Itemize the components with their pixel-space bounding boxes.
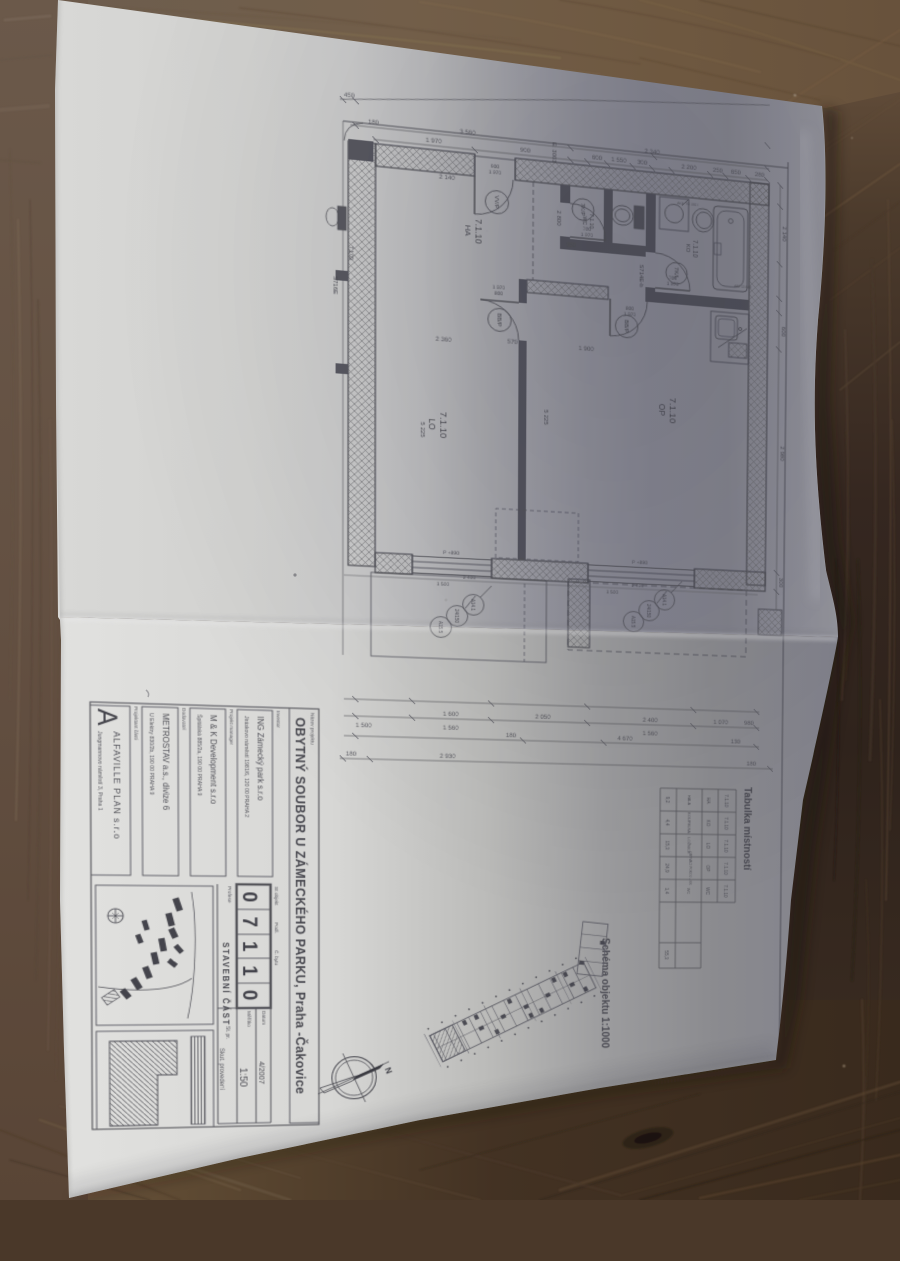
svg-text:1 500: 1 500 <box>437 581 450 588</box>
svg-text:180: 180 <box>747 761 757 768</box>
svg-text:1 970: 1 970 <box>489 169 502 176</box>
svg-text:St. pr.: St. pr. <box>224 1026 230 1039</box>
svg-text:2 140: 2 140 <box>781 226 788 242</box>
svg-text:Profese: Profese <box>226 886 232 903</box>
svg-text:24/150: 24/150 <box>646 604 651 618</box>
svg-text:5 225: 5 225 <box>419 422 426 438</box>
svg-text:WC: WC <box>704 887 710 895</box>
svg-text:7.1.10: 7.1.10 <box>588 213 594 229</box>
svg-text:AKU TO 150 l: AKU TO 150 l <box>677 201 698 207</box>
svg-text:1 550: 1 550 <box>611 156 627 165</box>
svg-text:KOUPELNA: KOUPELNA <box>687 812 692 833</box>
svg-text:2 980: 2 980 <box>779 446 786 462</box>
svg-text:2 140: 2 140 <box>439 173 456 182</box>
svg-text:450: 450 <box>344 91 355 99</box>
svg-text:980: 980 <box>744 720 754 727</box>
svg-text:BB/P: BB/P <box>622 319 628 333</box>
svg-text:LO: LO <box>427 418 437 430</box>
svg-text:KO: KO <box>684 243 690 252</box>
svg-text:700: 700 <box>583 226 592 233</box>
svg-text:2 360: 2 360 <box>436 336 452 344</box>
svg-text:600: 600 <box>780 326 787 337</box>
svg-text:4,4: 4,4 <box>664 819 670 826</box>
svg-text:700: 700 <box>669 275 677 282</box>
svg-text:7.1.10: 7.1.10 <box>722 885 728 898</box>
svg-text:9,2: 9,2 <box>664 796 670 803</box>
svg-text:HALA: HALA <box>687 795 692 805</box>
svg-text:OBÝVACÍ POKOJ + KK: OBÝVACÍ POKOJ + KK <box>688 851 692 885</box>
svg-text:550: 550 <box>566 242 577 250</box>
svg-text:24,9: 24,9 <box>663 864 669 873</box>
svg-text:STAVEBNÍ ČÁST: STAVEBNÍ ČÁST <box>221 942 231 1026</box>
svg-text:2 200: 2 200 <box>681 164 697 172</box>
svg-text:Investor: Investor <box>275 711 281 729</box>
svg-text:HA: HA <box>705 797 711 804</box>
svg-text:2 930: 2 930 <box>440 753 456 760</box>
svg-text:Jungmannovo náměstí 3, Praha 1: Jungmannovo náměstí 3, Praha 1 <box>96 731 103 811</box>
svg-text:1: 1 <box>238 941 260 952</box>
svg-text:180: 180 <box>346 751 357 758</box>
svg-text:E: 3003: E: 3003 <box>550 142 556 164</box>
svg-text:OP: OP <box>704 865 710 872</box>
svg-text:2 400: 2 400 <box>643 717 658 724</box>
svg-text:A: A <box>91 708 122 726</box>
svg-text:WC: WC <box>686 888 691 894</box>
svg-text:ING Zámecký park s.r.o: ING Zámecký park s.r.o <box>255 716 265 801</box>
svg-text:A15.5: A15.5 <box>438 621 443 633</box>
svg-text:7K/P: 7K/P <box>579 203 585 216</box>
svg-text:1: 1 <box>238 965 260 976</box>
svg-text:S714E-b: S714E-b <box>638 264 644 288</box>
svg-text:55,3: 55,3 <box>663 951 669 960</box>
svg-text:HA: HA <box>463 224 472 237</box>
svg-text:U Elektry 830/2b, 190 00 PRAHA: U Elektry 830/2b, 190 00 PRAHA 9 <box>147 713 154 795</box>
svg-text:1:50: 1:50 <box>237 1068 249 1088</box>
svg-text:24/150: 24/150 <box>454 609 459 623</box>
svg-text:2 400: 2 400 <box>463 575 476 582</box>
svg-text:Název projektu: Název projektu <box>309 713 315 745</box>
svg-text:1 500: 1 500 <box>356 722 373 729</box>
svg-text:570: 570 <box>507 338 518 346</box>
svg-text:2 050: 2 050 <box>535 714 551 721</box>
svg-text:900: 900 <box>491 164 500 171</box>
svg-text:7.1.10: 7.1.10 <box>437 411 448 438</box>
svg-text:2 400: 2 400 <box>632 583 644 589</box>
svg-text:2 800: 2 800 <box>555 210 562 227</box>
svg-text:130: 130 <box>731 739 741 746</box>
svg-text:VV/P: VV/P <box>492 195 498 209</box>
svg-text:KO: KO <box>705 820 711 827</box>
svg-text:650: 650 <box>731 169 741 177</box>
svg-text:1,4: 1,4 <box>663 888 669 895</box>
svg-text:S716E: S716E <box>331 276 337 295</box>
svg-text:Skut. provedení: Skut. provedení <box>218 1048 225 1090</box>
svg-text:7.1.10: 7.1.10 <box>722 840 728 853</box>
svg-text:Jiráskovo náměstí 1981/6, 120: Jiráskovo náměstí 1981/6, 120 00 PRAHA 2 <box>243 716 250 818</box>
svg-text:1 560: 1 560 <box>443 725 459 732</box>
svg-text:LO: LO <box>705 843 711 849</box>
svg-text:METROSTAV a.s., divize 6: METROSTAV a.s., divize 6 <box>161 713 171 810</box>
svg-text:M & K Development s.r.o: M & K Development s.r.o <box>208 715 218 805</box>
svg-text:Projektant části: Projektant části <box>132 706 139 740</box>
svg-text:7.1.10: 7.1.10 <box>722 862 728 875</box>
svg-text:1 560: 1 560 <box>643 730 658 737</box>
svg-text:Špitálská 885/2a, 190 00 PRAHA: Špitálská 885/2a, 190 00 PRAHA 9 <box>195 714 203 796</box>
svg-text:WC: WC <box>581 216 587 226</box>
svg-text:Datum: Datum <box>260 1011 266 1025</box>
svg-text:Č. bytu: Č. bytu <box>273 950 280 965</box>
svg-text:0: 0 <box>238 990 260 1001</box>
svg-text:A14.1: A14.1 <box>470 599 475 611</box>
svg-text:600: 600 <box>592 154 603 162</box>
svg-text:3 560: 3 560 <box>460 128 476 137</box>
svg-text:1 970: 1 970 <box>667 281 679 288</box>
svg-text:300: 300 <box>777 578 784 589</box>
svg-text:180: 180 <box>506 732 517 739</box>
svg-text:BB/P: BB/P <box>495 313 501 327</box>
svg-text:4 670: 4 670 <box>617 735 633 742</box>
svg-text:900: 900 <box>520 147 531 155</box>
svg-text:Měřítko: Měřítko <box>245 1011 251 1027</box>
svg-text:OP: OP <box>657 404 667 417</box>
svg-text:15,3: 15,3 <box>664 841 670 850</box>
svg-text:250: 250 <box>713 167 723 175</box>
svg-text:OBYTNÝ SOUBOR U ZÁMECKÉHO PARK: OBYTNÝ SOUBOR U ZÁMECKÉHO PARKU, Praha -… <box>293 717 309 1094</box>
svg-text:5 225: 5 225 <box>542 409 549 425</box>
svg-text:1 970: 1 970 <box>492 285 505 292</box>
svg-text:1 970: 1 970 <box>426 137 443 146</box>
svg-text:1 500: 1 500 <box>606 589 618 595</box>
svg-text:180: 180 <box>368 119 379 127</box>
svg-text:7.1.10: 7.1.10 <box>667 397 678 423</box>
svg-text:ALFAVILLE PLAN s.r.o: ALFAVILLE PLAN s.r.o <box>111 731 123 839</box>
svg-text:300: 300 <box>637 159 648 167</box>
svg-text:A80 13 848: A80 13 848 <box>734 284 751 289</box>
svg-text:N: N <box>383 1066 395 1075</box>
svg-text:P +890: P +890 <box>632 560 648 567</box>
svg-text:7.1.10: 7.1.10 <box>691 240 698 259</box>
svg-text:1 070: 1 070 <box>713 719 728 726</box>
svg-text:Tabulka místností: Tabulka místností <box>741 787 752 871</box>
svg-text:1 600: 1 600 <box>443 711 459 718</box>
svg-text:Dodavatel: Dodavatel <box>180 708 187 730</box>
svg-text:280: 280 <box>755 171 765 179</box>
svg-text:1 970: 1 970 <box>581 232 594 239</box>
svg-text:7.1.10: 7.1.10 <box>723 794 729 807</box>
svg-text:Projekt manager: Projekt manager <box>228 709 235 745</box>
svg-text:A15.5: A15.5 <box>631 616 636 628</box>
svg-text:7.1.10: 7.1.10 <box>473 218 483 244</box>
svg-text:4/2007: 4/2007 <box>257 1061 267 1084</box>
svg-text:7: 7 <box>238 917 260 928</box>
svg-text:800: 800 <box>626 306 634 313</box>
svg-text:P +890: P +890 <box>443 550 459 557</box>
svg-text:1 970: 1 970 <box>624 311 636 318</box>
svg-text:Podl.: Podl. <box>273 922 279 933</box>
svg-text:St objekt: St objekt <box>273 887 279 906</box>
svg-text:1 900: 1 900 <box>579 345 595 353</box>
svg-text:0: 0 <box>238 892 260 903</box>
svg-text:800: 800 <box>494 291 503 298</box>
svg-text:2 340: 2 340 <box>645 148 661 157</box>
svg-text:7.1.10: 7.1.10 <box>723 817 729 830</box>
svg-text:A14.1: A14.1 <box>662 594 667 606</box>
